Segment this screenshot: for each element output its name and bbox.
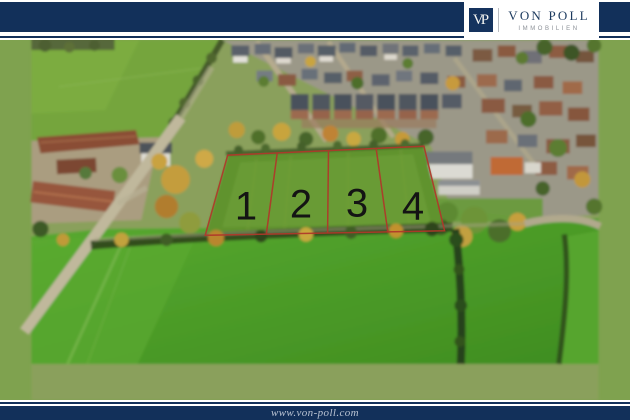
scenery <box>24 40 602 400</box>
vp-monogram-icon: VP <box>469 8 493 32</box>
aerial-photo-svg <box>0 40 630 400</box>
plot-number-1: 1 <box>235 185 257 230</box>
bottom-navy-bar: www.von-poll.com <box>0 406 630 420</box>
website-url: www.von-poll.com <box>271 407 359 419</box>
plot-number-2: 2 <box>290 183 312 228</box>
logo-text: VON POLL IMMOBILIEN <box>499 8 599 32</box>
bottom-rule-line <box>0 402 630 404</box>
aerial-photo: 1 2 3 4 <box>0 40 630 400</box>
brand-name: VON POLL <box>508 8 590 24</box>
orange-roof-house <box>491 157 523 175</box>
vp-monogram-text: VP <box>473 12 489 29</box>
plot-number-4: 4 <box>402 185 424 230</box>
listing-image: VP VON POLL IMMOBILIEN <box>0 0 630 420</box>
plot-number-3: 3 <box>346 182 368 227</box>
plot-divider-2 <box>328 151 329 233</box>
von-poll-logo: VP VON POLL IMMOBILIEN <box>464 2 599 38</box>
brand-subtitle: IMMOBILIEN <box>518 26 579 32</box>
